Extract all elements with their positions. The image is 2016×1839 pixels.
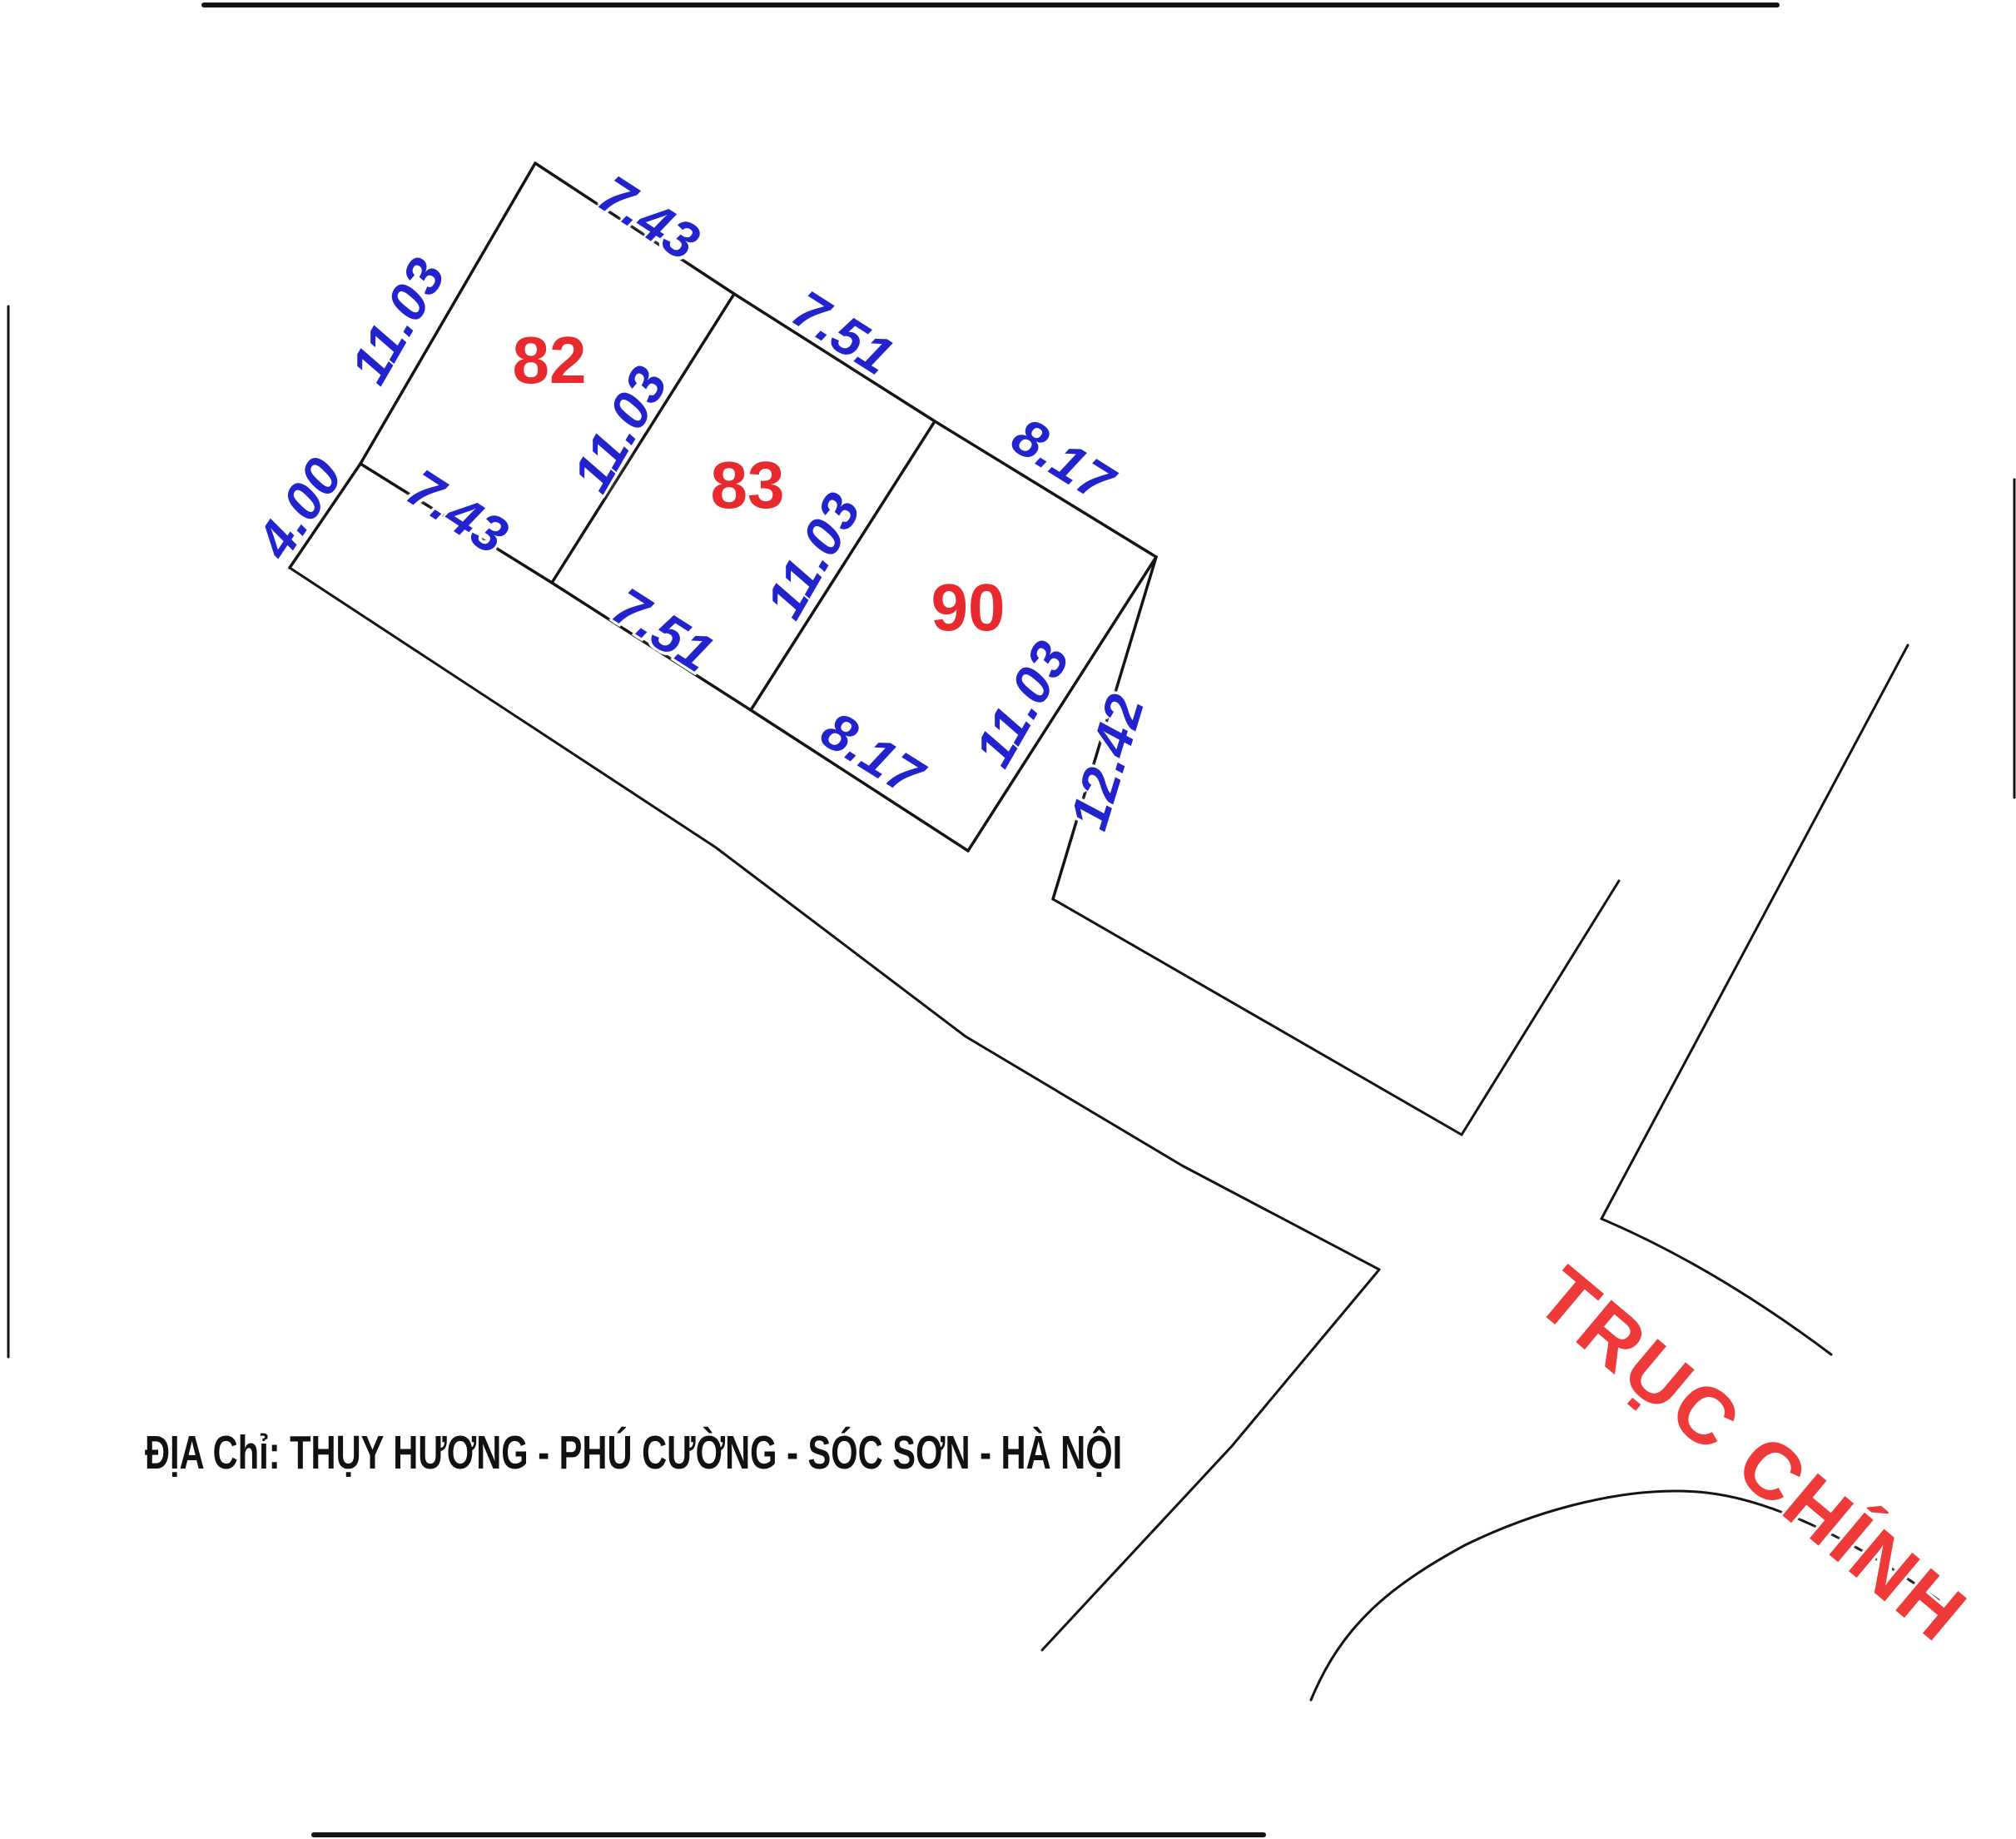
address-caption: ĐỊA Chỉ: THỤY HƯƠNG - PHÚ CƯỜNG - SÓC SƠ… <box>145 1425 1122 1480</box>
parcel-83-number: 83 <box>711 447 785 524</box>
cadastral-map: 82 83 90 7.43 7.51 8.17 7.43 7.51 8.17 1… <box>0 0 2016 1839</box>
map-linework <box>0 0 2016 1839</box>
road-ne-branch-east-edge <box>1601 645 1908 1219</box>
parcel-90-number: 90 <box>931 569 1006 646</box>
road-north-edge <box>1053 899 1462 1135</box>
road-ne-branch-west-edge <box>1462 881 1619 1135</box>
parcel-82-number: 82 <box>513 322 587 399</box>
road-south-edge <box>290 568 1379 1270</box>
